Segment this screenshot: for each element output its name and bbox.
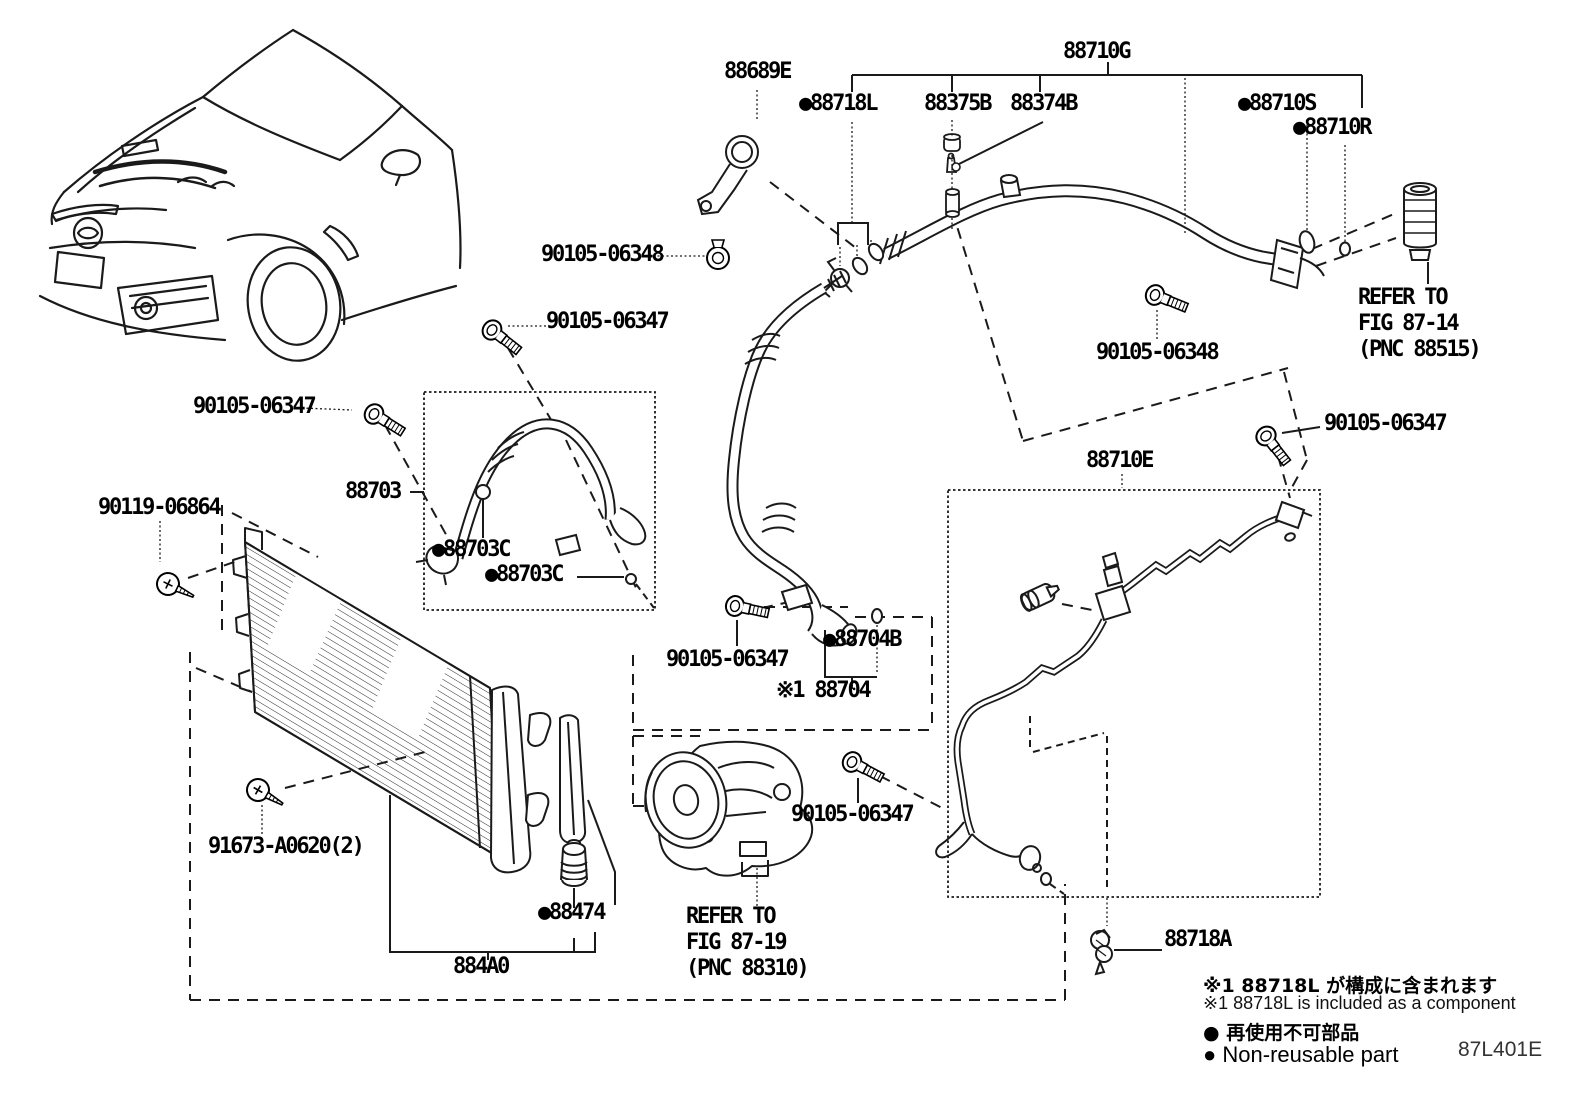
part-label-88375B: 88375B [924,93,990,115]
part-label-88703: 88703 [345,481,400,503]
bolt-90105-06347-b [361,401,408,441]
part-label-90119-06864: 90119-06864 [98,497,220,519]
flange-seals-and-valve [1297,183,1436,260]
suction-hose-88704 [732,271,882,646]
car-illustration [40,30,461,368]
part-label-88704B: ●88704B [823,629,900,651]
part-label-88703C-1: ●88703C [432,539,509,561]
part-label-91673-A0620: 91673-A0620(2) [208,836,363,858]
refer-note-fig-87-19: REFER TO FIG 87-19 (PNC 88310) [686,904,808,982]
refer-note-fig-87-14: REFER TO FIG 87-14 (PNC 88515) [1358,285,1480,363]
part-label-88710R: ●88710R [1293,117,1370,139]
part-label-90105-06348-b: 90105-06348 [1096,342,1218,364]
bolt-90105-06347-a [479,317,525,359]
part-label-90105-06347-a: 90105-06347 [546,311,668,333]
bolt-90105-06347-center [724,594,770,623]
screw-90119-06864 [153,569,198,606]
part-label-88710E: 88710E [1086,450,1152,472]
part-label-88718L: ●88718L [799,93,876,115]
part-label-90105-06347-right: 90105-06347 [1324,413,1446,435]
part-label-90105-06348-a: 90105-06348 [541,244,663,266]
part-label-88718A: 88718A [1164,929,1230,951]
liquid-pipe-88710E [936,502,1312,885]
screw-91673-A0620 [243,775,288,814]
part-label-88710G: 88710G [1063,41,1129,63]
footnote-en-nonreusable: ● Non-reusable part [1203,1042,1399,1068]
clamp-88689E [698,136,758,214]
cap-88474 [561,840,587,886]
compressor [637,742,812,876]
clamp-kit-88718L [824,223,886,297]
bolt-90105-06348-right [1143,282,1190,317]
figure-code: 87L401E [1458,1038,1542,1062]
service-valve-parts [944,134,960,217]
bolt-90105-06348-left [707,240,729,269]
part-label-90105-06347-b: 90105-06347 [193,396,315,418]
part-label-88710S: ●88710S [1238,93,1315,115]
parts-diagram-page: 88689E 88710G ●88718L 88375B 88374B ●887… [0,0,1592,1099]
footnote-jp-nonreusable: ● 再使用不可部品 [1203,1018,1359,1045]
part-label-88374B: 88374B [1010,93,1076,115]
part-label-90105-06347-bottom: 90105-06347 [791,804,913,826]
part-label-884A0: 884A0 [453,956,508,978]
part-label-88703C-2: ●88703C [485,564,562,586]
footnote-en-component: ※1 88718L is included as a component [1203,993,1516,1014]
part-label-90105-06347-center: 90105-06347 [666,649,788,671]
clamp-88718A [1091,930,1112,974]
bolt-90105-06347-bottom [839,749,886,787]
part-label-88474: ●88474 [538,902,604,924]
part-label-88704: ※1 88704 [776,680,870,702]
part-label-88689E: 88689E [724,61,790,83]
bolt-90105-06347-right [1253,423,1295,469]
